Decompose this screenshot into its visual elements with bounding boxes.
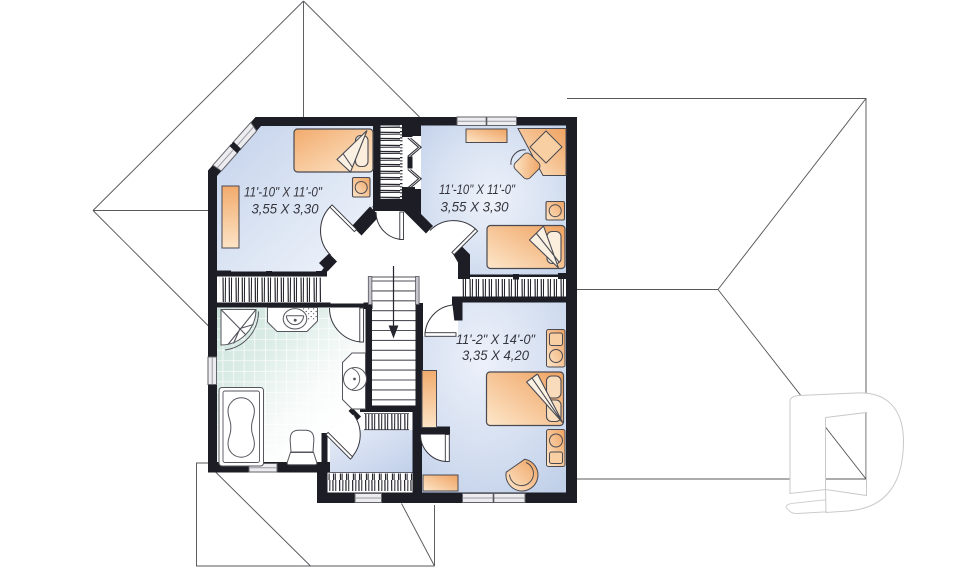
svg-text:11'-10" X 11'-0": 11'-10" X 11'-0" — [244, 185, 323, 200]
svg-text:3,35 X 4,20: 3,35 X 4,20 — [462, 348, 529, 363]
svg-text:3,55 X 3,30: 3,55 X 3,30 — [252, 202, 319, 217]
svg-text:3,55 X 3,30: 3,55 X 3,30 — [441, 200, 509, 215]
svg-text:11'-10" X 11'-0": 11'-10" X 11'-0" — [439, 182, 516, 197]
svg-text:11'-2" X 14'-0": 11'-2" X 14'-0" — [456, 332, 536, 347]
